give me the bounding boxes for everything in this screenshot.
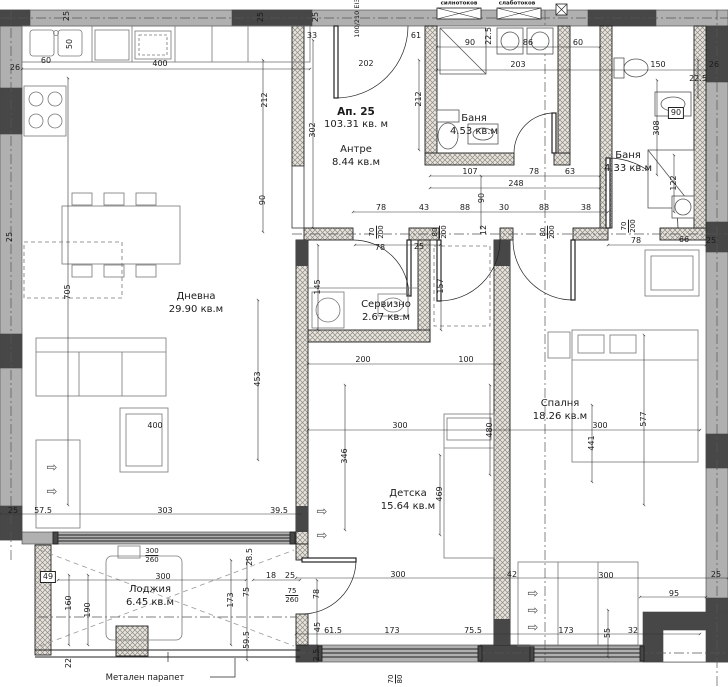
floor-plan-page: Ап. 25 103.31 кв. м Метален парапет силн… — [0, 0, 728, 687]
bath1-door — [514, 113, 556, 153]
washer-icon — [527, 28, 553, 54]
cooktop-icon — [24, 86, 66, 136]
floor-plan-canvas — [0, 0, 728, 687]
sink-icon — [30, 30, 54, 56]
bedroom-door — [513, 240, 575, 300]
entry-door — [334, 26, 408, 98]
inner-wall-columns — [296, 240, 510, 645]
bed — [572, 330, 698, 462]
inner-walls — [35, 26, 706, 656]
wall-opening — [292, 166, 304, 228]
power-panel-icon — [437, 8, 481, 19]
dining-table — [62, 193, 180, 277]
coffee-table — [120, 408, 168, 472]
dresser — [645, 250, 699, 296]
kitchen-counter — [22, 26, 310, 62]
washing-machine-icon — [312, 292, 344, 328]
survey-marker-icon — [556, 4, 567, 15]
cabinet — [36, 440, 80, 528]
rug — [24, 242, 122, 298]
toilet-icon — [437, 110, 459, 149]
lowvoltage-panel-icon — [497, 8, 541, 19]
sofa — [36, 338, 166, 396]
nightstand — [548, 332, 570, 358]
service-sink-icon — [378, 294, 408, 316]
basin-icon — [468, 124, 498, 144]
toilet-icon — [614, 58, 648, 78]
shower-icon — [440, 28, 486, 74]
axis-lines — [0, 10, 728, 687]
kids-bed — [444, 414, 494, 558]
dimension-lines — [0, 40, 728, 660]
washer-icon — [672, 196, 694, 218]
loggia-door — [302, 558, 356, 614]
wardrobe — [518, 562, 638, 646]
kids-room-door — [437, 240, 500, 301]
washer-icon — [497, 28, 523, 54]
kids-wardrobe — [434, 246, 490, 326]
basin-icon — [655, 92, 691, 116]
loggia-railing — [35, 650, 300, 677]
